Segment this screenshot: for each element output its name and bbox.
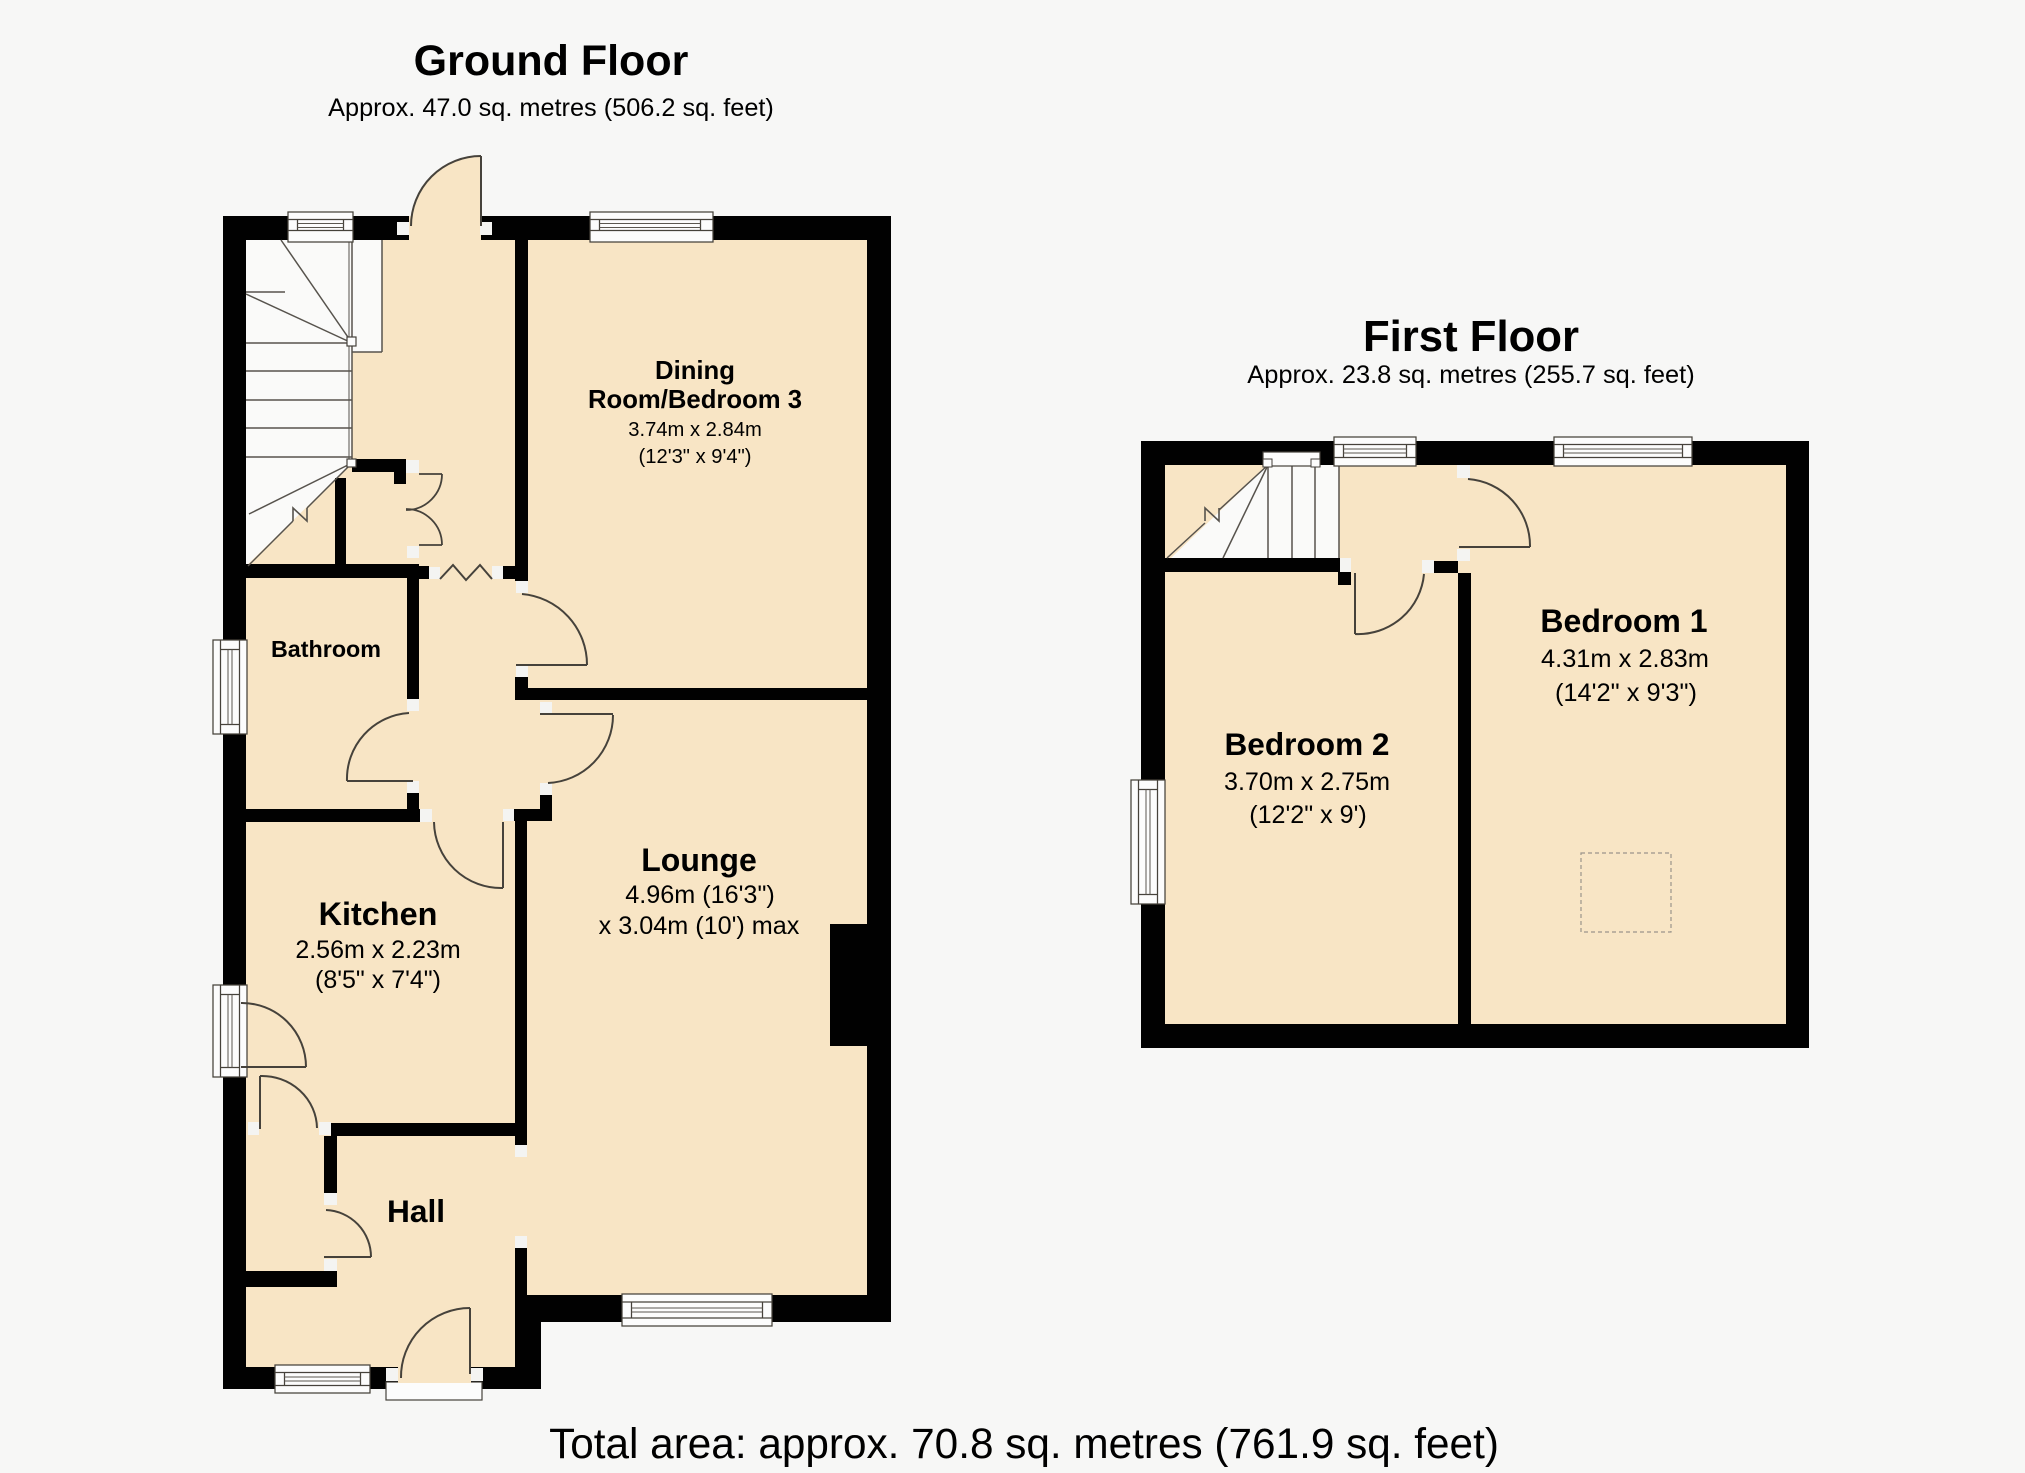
svg-text:Dining: Dining xyxy=(655,357,735,385)
svg-text:4.96m (16'3"): 4.96m (16'3") xyxy=(625,881,775,909)
svg-text:Hall: Hall xyxy=(387,1193,445,1229)
svg-text:Room/Bedroom 3: Room/Bedroom 3 xyxy=(588,386,802,414)
svg-text:First Floor: First Floor xyxy=(1363,312,1579,361)
svg-text:4.31m x 2.83m: 4.31m x 2.83m xyxy=(1541,645,1709,673)
svg-text:Ground Floor: Ground Floor xyxy=(414,37,689,85)
svg-text:2.56m x 2.23m: 2.56m x 2.23m xyxy=(295,936,460,964)
svg-text:Bedroom 1: Bedroom 1 xyxy=(1540,603,1707,639)
svg-text:3.74m x 2.84m: 3.74m x 2.84m xyxy=(628,419,762,441)
svg-text:Bathroom: Bathroom xyxy=(271,636,381,662)
svg-text:Kitchen: Kitchen xyxy=(319,896,438,932)
svg-text:(12'3" x 9'4"): (12'3" x 9'4") xyxy=(639,446,752,468)
svg-text:Lounge: Lounge xyxy=(641,842,757,878)
svg-text:x 3.04m (10') max: x 3.04m (10') max xyxy=(599,912,800,940)
svg-text:Total area: approx. 70.8 sq. m: Total area: approx. 70.8 sq. metres (761… xyxy=(549,1420,1499,1467)
svg-text:(14'2" x 9'3"): (14'2" x 9'3") xyxy=(1555,679,1697,707)
svg-text:Approx. 23.8 sq. metres (255.7: Approx. 23.8 sq. metres (255.7 sq. feet) xyxy=(1247,361,1694,389)
svg-text:(8'5" x 7'4"): (8'5" x 7'4") xyxy=(315,966,441,994)
svg-text:3.70m x 2.75m: 3.70m x 2.75m xyxy=(1224,768,1390,796)
svg-text:Bedroom 2: Bedroom 2 xyxy=(1224,726,1389,762)
svg-text:Approx. 47.0 sq. metres (506.2: Approx. 47.0 sq. metres (506.2 sq. feet) xyxy=(328,94,774,122)
svg-text:(12'2" x 9'): (12'2" x 9') xyxy=(1249,801,1367,829)
